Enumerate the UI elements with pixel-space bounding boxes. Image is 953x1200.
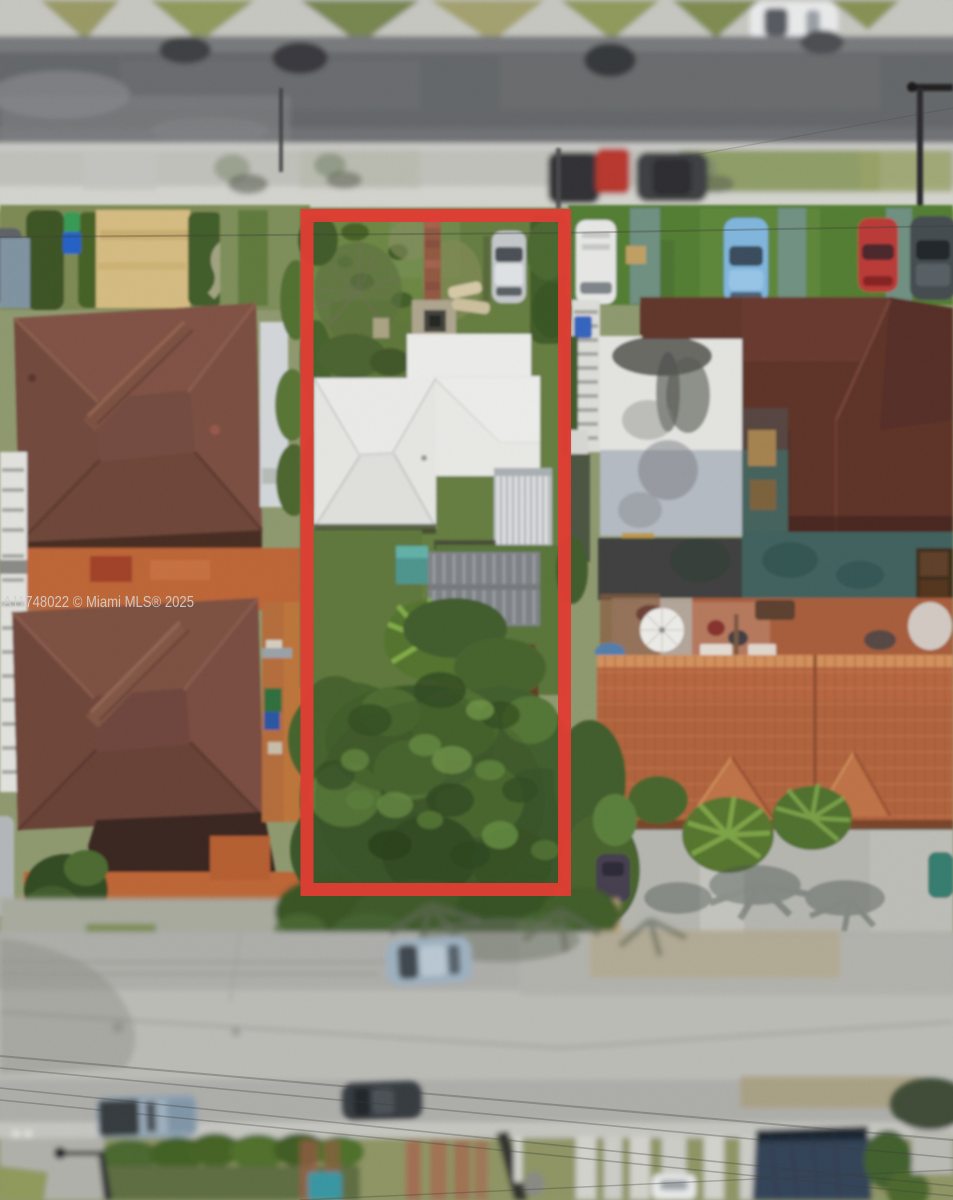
svg-text:A11748022 © Miami MLS® 2025: A11748022 © Miami MLS® 2025: [3, 594, 194, 611]
